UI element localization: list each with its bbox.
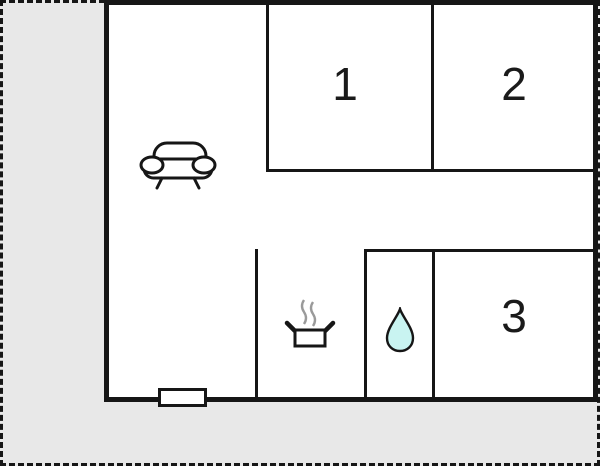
- interior-wall-room1-left: [266, 5, 269, 172]
- cooking-pot-icon: [283, 297, 337, 349]
- interior-wall-bathroom-right: [432, 249, 435, 397]
- room-2-label: 2: [501, 61, 527, 107]
- interior-wall-room1-room2: [431, 5, 434, 172]
- interior-wall-bathroom-left: [364, 249, 367, 397]
- sofa-icon: [136, 138, 220, 190]
- room-3-label: 3: [501, 293, 527, 339]
- entrance-door: [158, 388, 207, 407]
- interior-wall-kitchen-left: [255, 249, 258, 397]
- water-drop-icon: [385, 307, 415, 353]
- room-1-label: 1: [332, 61, 358, 107]
- interior-wall-room3-top: [364, 249, 593, 252]
- interior-wall-rooms-bottom: [266, 169, 593, 172]
- floor-plan: 1 2 3: [0, 0, 600, 469]
